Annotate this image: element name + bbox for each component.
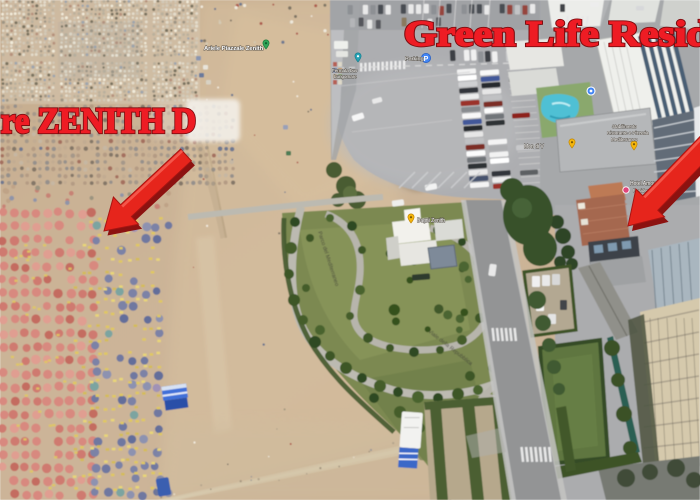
svg-text:Parking: Parking	[405, 57, 424, 63]
svg-text:Fermata bus: Fermata bus	[332, 68, 358, 73]
svg-text:Lungomare: Lungomare	[334, 74, 357, 79]
svg-text:re ZENITH D: re ZENITH D	[1, 101, 196, 141]
svg-text:Green Life Resid: Green Life Resid	[404, 14, 700, 54]
svg-text:Stabilimento: Stabilimento	[612, 124, 637, 129]
svg-text:Ariele Piazzale Zenith: Ariele Piazzale Zenith	[204, 46, 264, 52]
svg-text:Bagni Zenith: Bagni Zenith	[417, 218, 445, 224]
svg-text:P: P	[424, 56, 429, 63]
svg-text:Ristorante e Pizzeria: Ristorante e Pizzeria	[607, 131, 649, 136]
svg-text:Mediterraneo: Mediterraneo	[611, 137, 638, 142]
svg-text:Mon di V: Mon di V	[524, 144, 544, 150]
